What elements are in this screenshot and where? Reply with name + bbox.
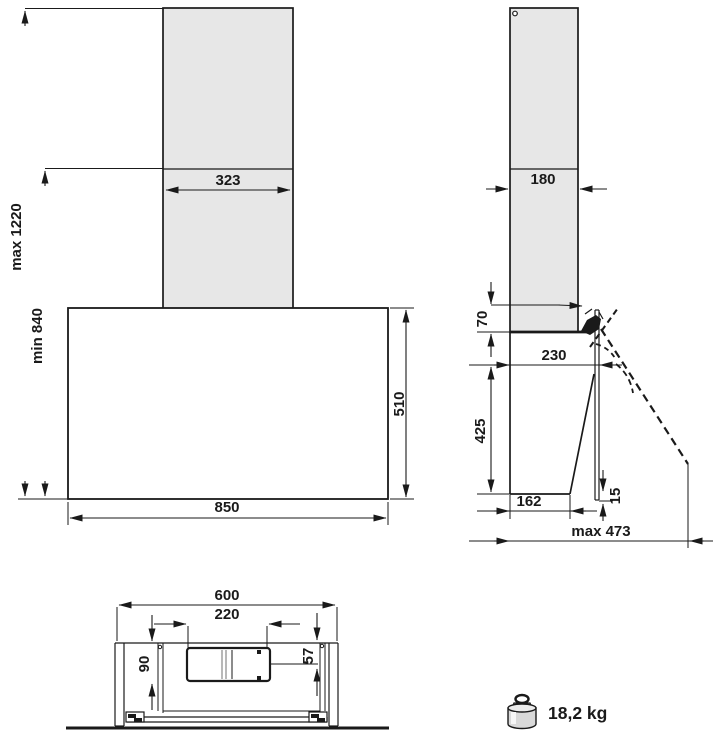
mounting-bracket-right — [309, 712, 327, 722]
weight-label: 18,2 kg — [548, 703, 607, 723]
side-view: 180 — [469, 8, 713, 548]
dim-label-overall-width: 600 — [214, 587, 239, 604]
dim-label-body-width: 850 — [214, 499, 239, 516]
dim-label-chimney-width: 323 — [215, 172, 240, 189]
dim-label-duct-center: 57 — [300, 648, 317, 665]
front-chimney — [163, 8, 293, 309]
dim-bottom-duct-center: 57 — [300, 613, 317, 696]
dim-side-front-height: 425 — [472, 367, 510, 494]
mounting-bracket-left — [126, 712, 144, 722]
dim-label-height-min: min 840 — [29, 308, 46, 364]
bottom-view: 600 220 90 57 — [66, 587, 389, 728]
front-hood-body — [68, 308, 388, 499]
side-chimney — [510, 8, 578, 332]
open-panel-projection — [590, 308, 688, 464]
dim-front-body-width: 850 — [68, 499, 388, 525]
front-view: 323 max 1220 min 840 510 — [8, 8, 414, 525]
dim-label-front-height: 425 — [472, 418, 489, 443]
dim-bottom-duct-depth: 90 — [136, 615, 153, 710]
dim-front-body-height: 510 — [390, 308, 414, 499]
dim-label-panel-offset: 15 — [607, 488, 624, 505]
dim-side-panel-offset: 15 — [599, 470, 624, 521]
dim-label-duct-depth: 90 — [136, 656, 153, 673]
duct-outlet — [187, 648, 318, 681]
dim-side-chimney-depth: 180 — [486, 171, 607, 189]
dim-side-open-depth: max 473 — [469, 464, 713, 548]
dim-side-bottom-depth: 162 — [477, 493, 597, 519]
panel-hinge — [581, 309, 603, 335]
side-hood-slant-edge — [570, 374, 594, 494]
dim-label-open-depth: max 473 — [571, 523, 630, 540]
dimension-drawing-page: 323 max 1220 min 840 510 — [0, 0, 722, 738]
chimney-screw-hole — [513, 11, 518, 16]
weight-spec: 18,2 kg — [508, 695, 607, 729]
hood-dimension-drawing: 323 max 1220 min 840 510 — [0, 0, 722, 738]
weight-highlight — [511, 712, 516, 724]
dim-label-bottom-depth: 162 — [516, 493, 541, 510]
dim-label-height-max: max 1220 — [8, 203, 25, 271]
dim-label-chimney-depth: 180 — [530, 171, 555, 188]
dim-label-body-depth: 230 — [541, 347, 566, 364]
dim-label-top-offset: 70 — [474, 311, 491, 328]
dim-label-body-height: 510 — [391, 391, 408, 416]
dim-label-duct-width: 220 — [214, 606, 239, 623]
weight-icon — [508, 695, 536, 729]
